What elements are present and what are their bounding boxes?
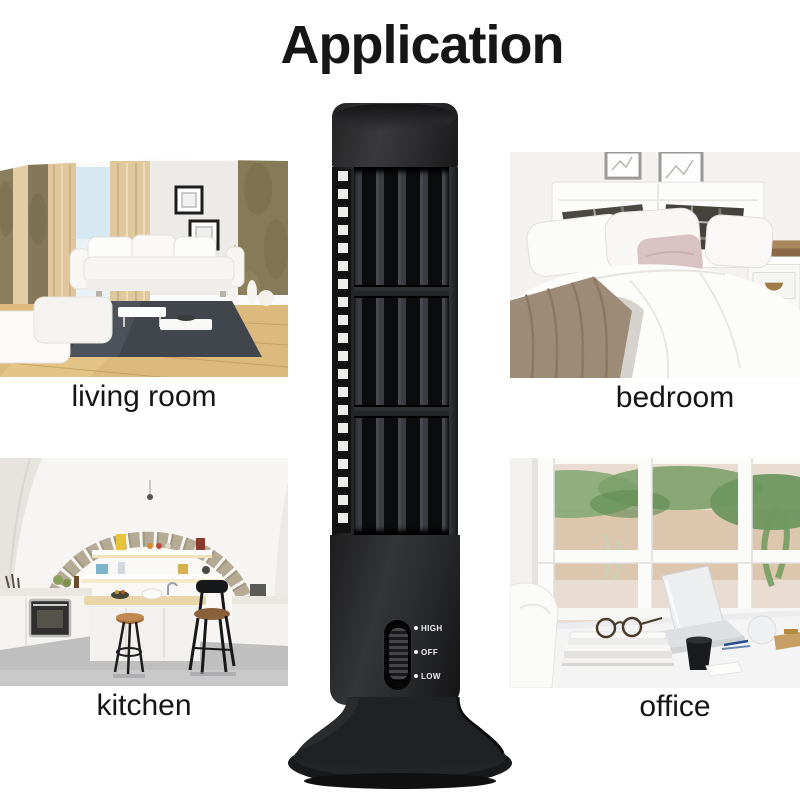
switch-label-high: HIGH: [421, 624, 443, 633]
switch-dot-icon: [414, 674, 418, 678]
bedroom-photo: [510, 152, 800, 378]
bedroom-illustration: [510, 152, 800, 378]
kitchen-caption: kitchen: [0, 689, 288, 723]
fan-grille-divider-lower: [354, 405, 449, 418]
application-poster: Application: [0, 0, 800, 800]
kitchen-photo: [0, 458, 288, 686]
fan-lower-body: HIGH OFF LOW: [330, 535, 460, 705]
switch-label-off: OFF: [421, 648, 438, 657]
bedroom-caption: bedroom: [510, 381, 800, 415]
switch-option-high: HIGH: [414, 623, 443, 633]
fan-vent-grille: [332, 167, 458, 535]
fan-switch-slider: [388, 627, 409, 681]
switch-dot-icon: [414, 650, 418, 654]
switch-option-off: OFF: [414, 647, 438, 657]
kitchen-illustration: [0, 458, 288, 686]
office-photo: [510, 458, 800, 688]
living-room-illustration: [0, 149, 288, 377]
switch-label-low: LOW: [421, 672, 441, 681]
fan-vertical-slats: [354, 167, 449, 535]
page-title: Application: [0, 14, 800, 76]
fan-speed-switch: [384, 620, 411, 690]
living-room-caption: living room: [0, 380, 288, 414]
fan-top-cap-shading: [334, 104, 456, 130]
fan-side-holes-column: [335, 169, 351, 533]
office-illustration: [510, 458, 800, 688]
living-room-photo: [0, 149, 288, 377]
office-caption: office: [510, 690, 800, 724]
fan-side-holes-pattern: [338, 171, 348, 531]
fan-base: [285, 697, 515, 792]
switch-dot-icon: [414, 626, 418, 630]
switch-option-low: LOW: [414, 671, 441, 681]
tower-fan-product: HIGH OFF LOW: [280, 100, 520, 795]
fan-grille-divider-upper: [354, 285, 449, 298]
fan-top-cap: [332, 103, 458, 167]
